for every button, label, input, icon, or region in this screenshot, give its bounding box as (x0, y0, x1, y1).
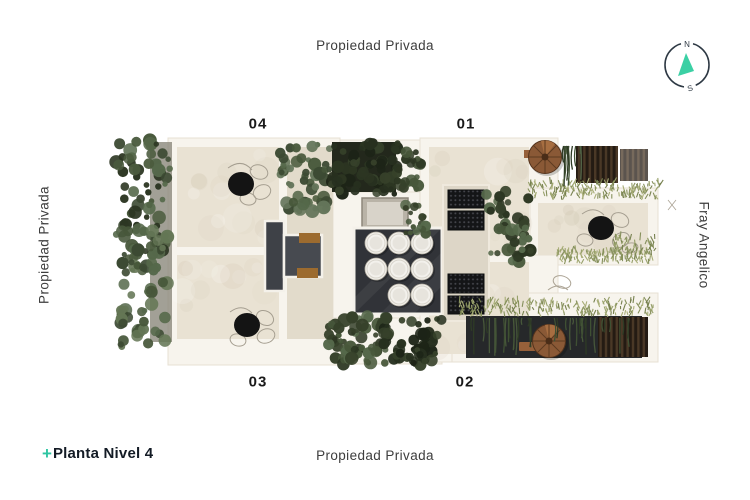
compass-needle-icon (678, 53, 694, 76)
unit-label-02: 02 (456, 374, 475, 391)
compass-north-label: N (684, 40, 690, 49)
brand-lockup: + Planta Nivel 4 (42, 445, 153, 462)
unit-label-01: 01 (457, 116, 476, 133)
unit-label-04: 04 (249, 116, 268, 133)
boundary-label-left: Propiedad Privada (37, 145, 52, 345)
hedge-left-upper (109, 133, 173, 263)
brand-plus-icon: + (42, 445, 52, 462)
level-title: Planta Nivel 4 (53, 445, 153, 462)
street-label-right: Fray Angelico (697, 145, 712, 345)
unit-label-03: 03 (249, 374, 268, 391)
wood-landing-bottom (297, 268, 318, 278)
dome-skylight-roof (354, 228, 442, 314)
floorplan-render (0, 0, 750, 500)
wood-landing-top (299, 233, 320, 243)
pergola-top-right (576, 146, 618, 183)
louver-grid (448, 274, 484, 293)
pergola-top-right-2 (620, 149, 648, 181)
louver-skylight-column (443, 185, 489, 321)
boundary-label-top: Propiedad Privada (0, 38, 750, 53)
floorplan-page: Propiedad Privada Propiedad Privada Prop… (0, 0, 750, 500)
louver-grid (448, 211, 484, 230)
compass: N S (658, 36, 716, 94)
louver-grid (448, 190, 484, 208)
